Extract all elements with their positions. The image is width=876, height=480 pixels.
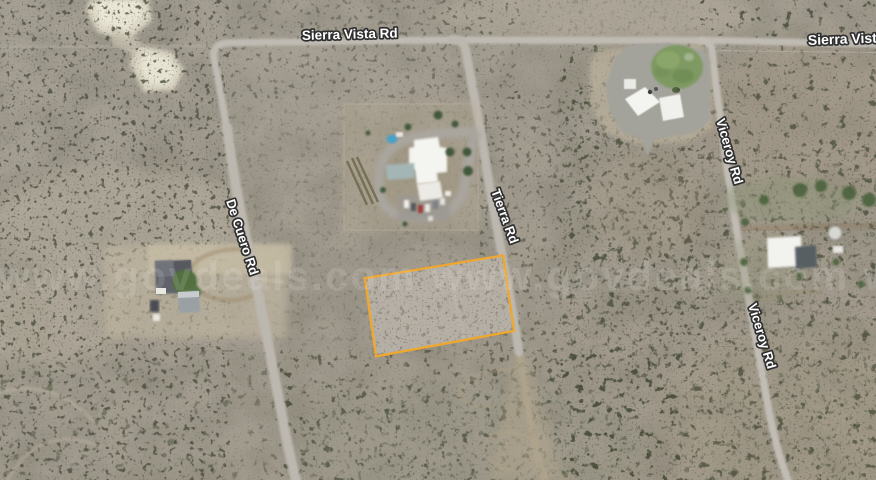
svg-text:www.govdeals.com www.govdeals.: www.govdeals.com www.govdeals.com w xyxy=(0,253,876,299)
svg-text:Sierra Vista Rd: Sierra Vista Rd xyxy=(808,29,876,48)
svg-text:Sierra Vista Rd: Sierra Vista Rd xyxy=(302,25,398,43)
